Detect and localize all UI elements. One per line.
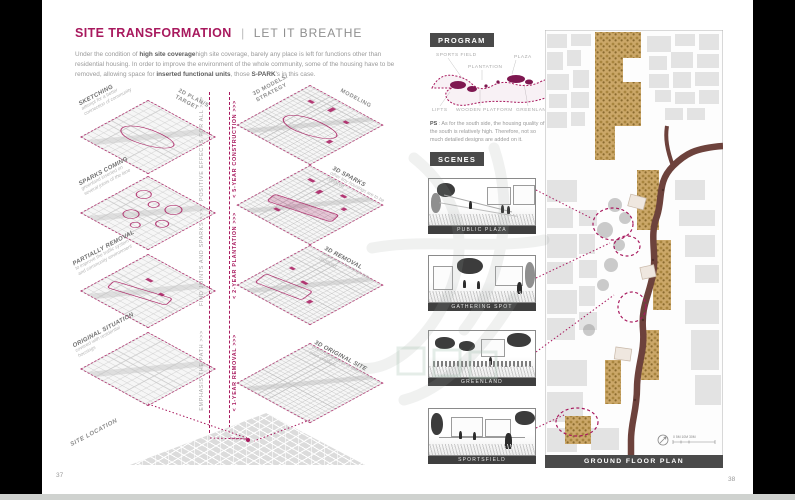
program-ps-note: PS : As for the south side, the housing …: [430, 121, 546, 144]
person: [469, 201, 472, 209]
scene-image: [428, 408, 536, 456]
black-margin-left: [0, 0, 42, 500]
scene-card-gathering-spot: GATHERING SPOT: [428, 255, 536, 311]
ground-floor-plan-map: 0 5M 10M 30M: [545, 30, 723, 456]
building: [487, 187, 511, 205]
building: [451, 417, 483, 437]
scene-caption: SPORTSFIELD: [428, 456, 536, 464]
scene-image: [428, 255, 536, 303]
program-label-plantation: PLANTATION: [468, 64, 502, 70]
person: [477, 281, 480, 289]
scene-card-sportsfield: SPORTSFIELD: [428, 408, 536, 464]
page-number-right: 38: [728, 476, 735, 483]
ps-text: : As for the south side, the housing qua…: [430, 121, 544, 143]
person: [501, 205, 504, 213]
tree: [507, 333, 531, 347]
ground-floor-plan-caption: GROUND FLOOR PLAN: [545, 455, 723, 468]
tree: [459, 341, 475, 351]
ground-hatch: [429, 214, 535, 225]
building: [433, 266, 453, 290]
tree: [515, 411, 535, 425]
program-diagram: SPORTS FIELD PLAZA PLANTATION LIFTS WOOD…: [428, 48, 556, 112]
person: [473, 432, 476, 440]
ground-hatch: [429, 291, 535, 302]
scene-image: [428, 178, 536, 226]
tree: [431, 413, 443, 435]
program-header-badge: PROGRAM: [430, 33, 494, 47]
program-blob-outline: [432, 75, 556, 105]
scene-image: [428, 330, 536, 378]
tree: [457, 258, 483, 274]
program-label-plaza: PLAZA: [514, 54, 532, 60]
scenes-header-badge: SCENES: [430, 152, 484, 166]
person: [507, 206, 510, 214]
ground-hatch: [429, 366, 535, 377]
program-label-lifts: LIFTS: [432, 107, 448, 112]
tree: [525, 262, 535, 288]
scene-card-greenland: GREENLAND: [428, 330, 536, 386]
person: [459, 431, 462, 439]
scale-text: 0 5M 10M 30M: [673, 435, 696, 439]
right-page: PROGRAM SPORTS FIELD PLAZA PLANTATION: [42, 0, 753, 494]
building: [481, 339, 505, 357]
page-spread: SITE TRANSFORMATION | LET IT BREATHE Und…: [42, 0, 753, 494]
scene-caption: GREENLAND: [428, 378, 536, 386]
person: [463, 280, 466, 288]
program-label-wooden-platform: WOODEN PLATFORM: [456, 107, 513, 112]
building: [513, 185, 535, 205]
fence-line: [439, 437, 525, 438]
portfolio-spread-screenshot: SITE TRANSFORMATION | LET IT BREATHE Und…: [0, 0, 795, 500]
tree: [435, 337, 455, 349]
black-margin-right: [753, 0, 795, 500]
program-label-sports-field: SPORTS FIELD: [436, 52, 477, 58]
scene-caption: PUBLIC PLAZA: [428, 226, 536, 234]
scene-caption: GATHERING SPOT: [428, 303, 536, 311]
scene-card-public-plaza: PUBLIC PLAZA: [428, 178, 536, 234]
bottom-strip: [0, 494, 795, 500]
ground-hatch: [429, 444, 535, 455]
